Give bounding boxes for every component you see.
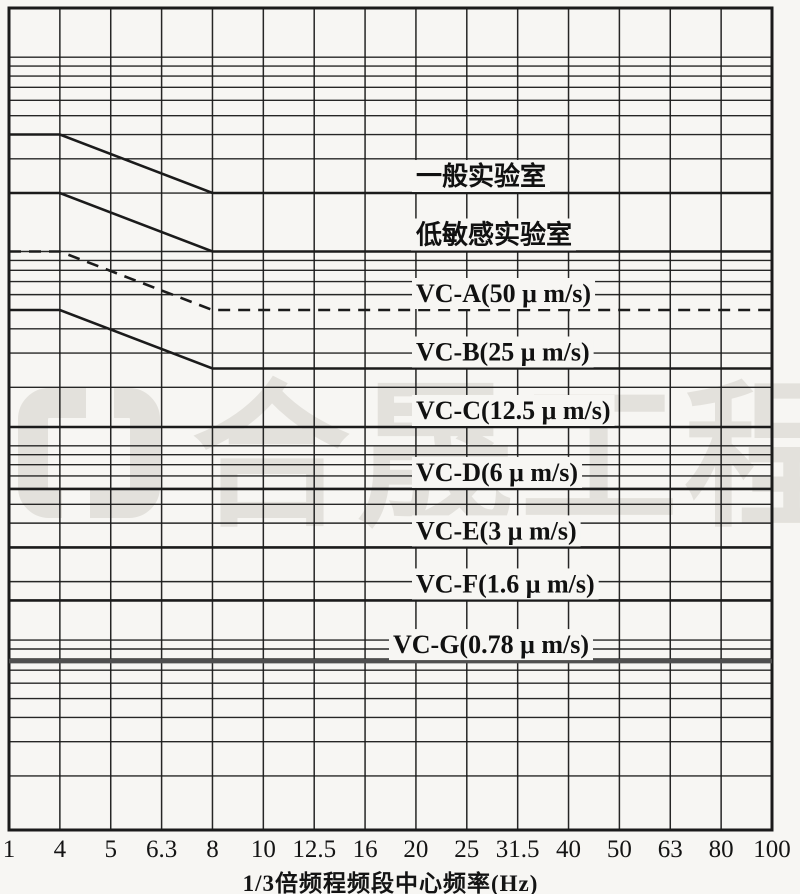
curve-line-general-lab	[9, 135, 772, 194]
scanned-vc-curves-chart: 合晟工程 一般实验室低敏感实验室VC-A(50 μ m/s)VC-B(25 μ …	[0, 0, 800, 894]
x-tick-label: 80	[709, 836, 734, 864]
vc-criteria-chart-canvas: 合晟工程 一般实验室低敏感实验室VC-A(50 μ m/s)VC-B(25 μ …	[0, 0, 800, 894]
x-tick-label: 12.5	[292, 836, 336, 864]
x-tick-label: 16	[353, 836, 378, 864]
x-tick-label: 1	[3, 836, 16, 864]
x-tick-label: 20	[403, 836, 428, 864]
x-tick-label: 4	[54, 836, 67, 864]
curve-label-vc-g: VC-G(0.78 μ m/s)	[393, 630, 589, 659]
curve-label-vc-c: VC-C(12.5 μ m/s)	[416, 396, 611, 425]
x-tick-label: 31.5	[496, 836, 540, 864]
x-tick-label: 63	[658, 836, 683, 864]
curve-label-vc-a: VC-A(50 μ m/s)	[416, 279, 591, 308]
curve-labels-layer: 一般实验室低敏感实验室VC-A(50 μ m/s)VC-B(25 μ m/s)V…	[389, 160, 615, 660]
x-tick-label: 8	[206, 836, 219, 864]
curve-label-low-sensitivity-lab: 低敏感实验室	[415, 220, 572, 250]
curve-line-low-sensitivity-lab	[9, 193, 772, 252]
x-tick-label: 6.3	[146, 836, 177, 864]
x-tick-label: 5	[104, 836, 117, 864]
curve-label-vc-e: VC-E(3 μ m/s)	[416, 516, 577, 545]
curve-line-vc-b	[9, 310, 772, 369]
curve-label-general-lab: 一般实验室	[416, 161, 546, 191]
curve-label-vc-f: VC-F(1.6 μ m/s)	[416, 569, 595, 598]
x-tick-label: 40	[556, 836, 581, 864]
x-tick-label: 25	[454, 836, 479, 864]
x-tick-label: 50	[607, 836, 632, 864]
curve-label-vc-d: VC-D(6 μ m/s)	[416, 458, 578, 487]
x-tick-label: 100	[753, 836, 791, 864]
curve-label-vc-b: VC-B(25 μ m/s)	[416, 337, 590, 366]
x-axis-title: 1/3倍频程频段中心频率(Hz)	[9, 864, 772, 894]
x-tick-label: 10	[251, 836, 276, 864]
